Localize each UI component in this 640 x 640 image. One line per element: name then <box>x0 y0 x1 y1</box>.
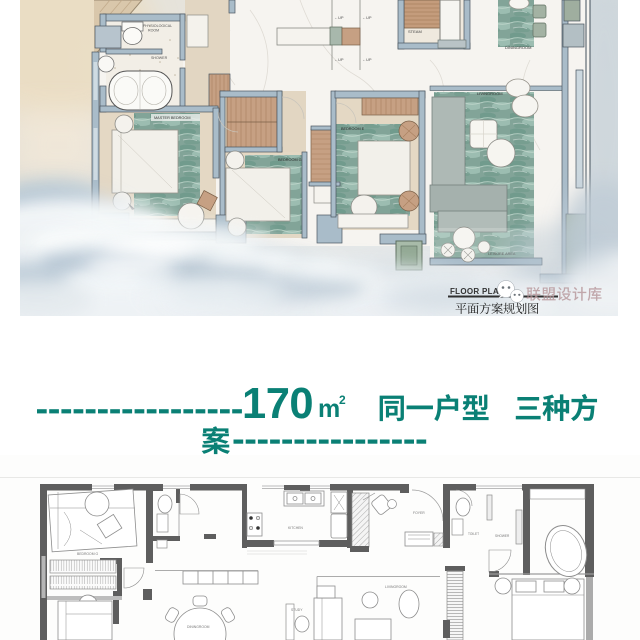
svg-text:DININGROOM: DININGROOM <box>187 625 210 629</box>
svg-text:←UP: ←UP <box>362 15 372 20</box>
svg-text:STEAM: STEAM <box>408 29 422 34</box>
svg-text:SHOWER: SHOWER <box>495 534 510 538</box>
svg-text:DININGROOM: DININGROOM <box>505 45 531 50</box>
svg-text:BEDROOM G: BEDROOM G <box>278 158 302 162</box>
svg-text:KITCHEN: KITCHEN <box>288 526 303 530</box>
svg-text:←UP: ←UP <box>362 57 372 62</box>
svg-text:PHYSIOLOGICAL: PHYSIOLOGICAL <box>143 24 172 28</box>
svg-text:←UP: ←UP <box>334 15 344 20</box>
svg-text:STUDY: STUDY <box>291 608 303 612</box>
svg-text:BEDROOM E: BEDROOM E <box>341 127 365 131</box>
svg-text:LIVINGROOM: LIVINGROOM <box>385 585 407 589</box>
svg-text:BEDROOM G: BEDROOM G <box>77 552 98 556</box>
svg-text:FLOOR PLAN: FLOOR PLAN <box>450 287 505 296</box>
svg-text:TOILET: TOILET <box>468 532 479 536</box>
svg-text:2: 2 <box>339 393 346 407</box>
svg-text:LIVINGROOM: LIVINGROOM <box>477 91 503 96</box>
svg-text:MASTER BEDROOM: MASTER BEDROOM <box>154 116 191 120</box>
svg-text:←UP: ←UP <box>334 57 344 62</box>
svg-text:FOYER: FOYER <box>413 511 425 515</box>
svg-text:ROOM: ROOM <box>148 29 159 33</box>
svg-text:170: 170 <box>242 380 313 428</box>
svg-text:SHOWER: SHOWER <box>151 56 168 60</box>
svg-text:m: m <box>318 395 340 423</box>
